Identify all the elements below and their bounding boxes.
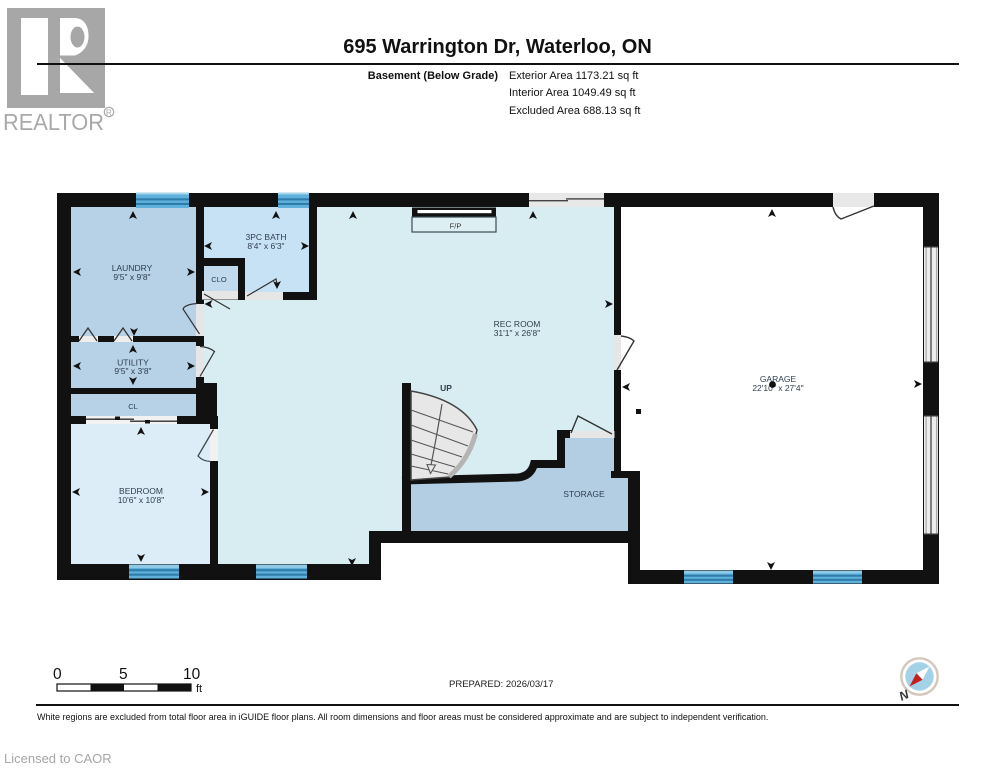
svg-text:ft: ft bbox=[196, 683, 202, 695]
